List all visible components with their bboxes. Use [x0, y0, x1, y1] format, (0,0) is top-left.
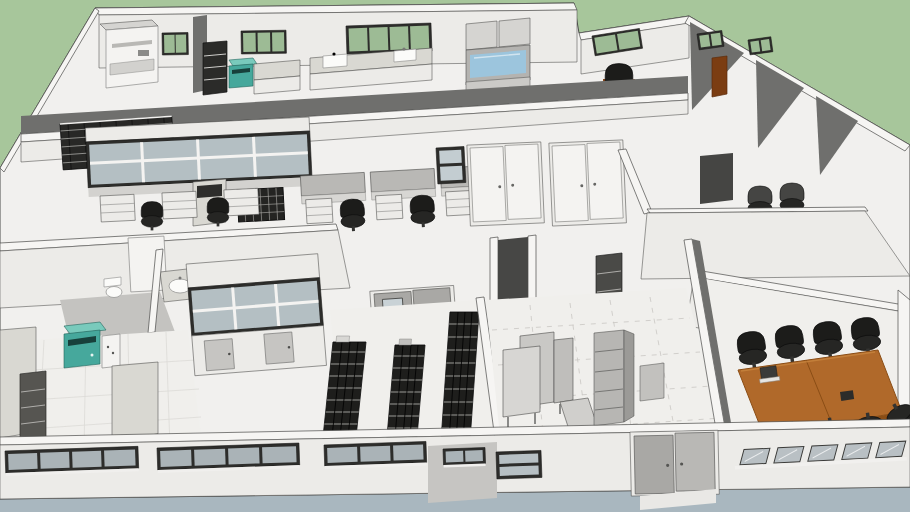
window-pane [262, 446, 297, 463]
drawer-unit [100, 194, 135, 222]
front-window-small-2 [496, 450, 542, 479]
window-pane [594, 34, 617, 53]
front-window-strip-1 [5, 446, 139, 476]
window-pane [160, 450, 192, 467]
window-pane [439, 150, 462, 164]
front-window-small-1 [443, 448, 486, 468]
door-leaf [587, 142, 623, 219]
sink-basin [323, 54, 347, 68]
window-pane [711, 33, 722, 46]
window-pane [499, 454, 538, 464]
green-window-1 [162, 33, 188, 55]
machine-button [91, 354, 94, 357]
toilet-tank [104, 277, 121, 287]
window-pane [72, 451, 102, 468]
green-window-6 [748, 37, 773, 55]
drawer-unit [224, 188, 259, 216]
window-pane [465, 450, 483, 462]
machine-sidecar [102, 334, 120, 368]
window-pane [164, 35, 175, 53]
shelving-cabinet [594, 330, 634, 426]
corridor-wall-band [490, 237, 498, 308]
door-leaf [470, 147, 506, 222]
window-pane [272, 32, 284, 51]
window-pane [349, 28, 368, 52]
small-interior-window [436, 147, 466, 184]
hood-cabinet [466, 21, 497, 50]
drawer-unit [162, 191, 197, 219]
corridor-wall-band [528, 235, 536, 302]
dark-doorway-center [498, 237, 528, 304]
window-pane [176, 35, 187, 53]
window-pane [228, 447, 260, 464]
door-leaf [552, 145, 588, 222]
machine-front [64, 330, 100, 368]
toilet-bowl [106, 287, 122, 298]
rack-top-box [399, 339, 412, 345]
window-pane [699, 34, 710, 47]
bench-equipment [197, 184, 222, 198]
window-pane [40, 452, 70, 469]
copier-body [106, 26, 158, 88]
window-pane [750, 41, 760, 53]
white-double-door-b [549, 140, 627, 226]
copier-panel [138, 50, 149, 56]
window-pane [446, 451, 464, 463]
door-leaf [505, 144, 541, 219]
window-pane [761, 39, 771, 51]
door-leaf [675, 432, 715, 491]
window-pane [500, 466, 539, 476]
window-pane [390, 26, 409, 50]
window-pane [393, 445, 424, 461]
window-pane [360, 446, 391, 462]
green-window-5 [697, 31, 724, 50]
copier-machine [100, 20, 158, 88]
window-pane [617, 31, 640, 50]
window-pane [243, 33, 256, 52]
tall-gray-cabinet [20, 371, 46, 442]
window-pane [8, 453, 38, 470]
window-pane [258, 32, 271, 51]
window-pane [369, 27, 388, 51]
work-table-front [503, 346, 540, 417]
sidecar-knob [112, 352, 114, 354]
cabinet-front [594, 330, 624, 426]
hood-cabinet [499, 18, 530, 47]
sink-basin [394, 49, 416, 62]
window-pane [327, 447, 358, 463]
office-wall-plane [641, 211, 910, 279]
sidecar-knob [107, 346, 109, 348]
marble-counter-bottom [112, 362, 158, 440]
front-window-strip-2 [157, 443, 300, 473]
window-pane [194, 449, 226, 466]
faucet [179, 277, 182, 280]
cabinet-side [624, 330, 634, 422]
window-pane [440, 166, 463, 181]
shipping-box [640, 363, 664, 401]
window-pane [410, 26, 429, 50]
front-window-strip-3 [324, 441, 427, 469]
model-viewport[interactable] [0, 0, 910, 512]
green-window-2 [241, 30, 286, 54]
model-stage [0, 0, 910, 512]
analyzer-front [229, 64, 253, 88]
entrance-double-door [630, 430, 719, 496]
window-pane [104, 449, 136, 466]
work-table-side [554, 338, 573, 403]
tall-dark-cabinet [203, 41, 227, 95]
rack-top-box [336, 336, 350, 342]
dark-doorway [700, 153, 733, 204]
interior-window-wall-2 [186, 254, 326, 376]
faucet [332, 52, 335, 55]
wood-door [712, 56, 727, 97]
faucet [402, 47, 405, 50]
white-double-door-a [467, 142, 544, 226]
speakerphone [840, 390, 854, 401]
